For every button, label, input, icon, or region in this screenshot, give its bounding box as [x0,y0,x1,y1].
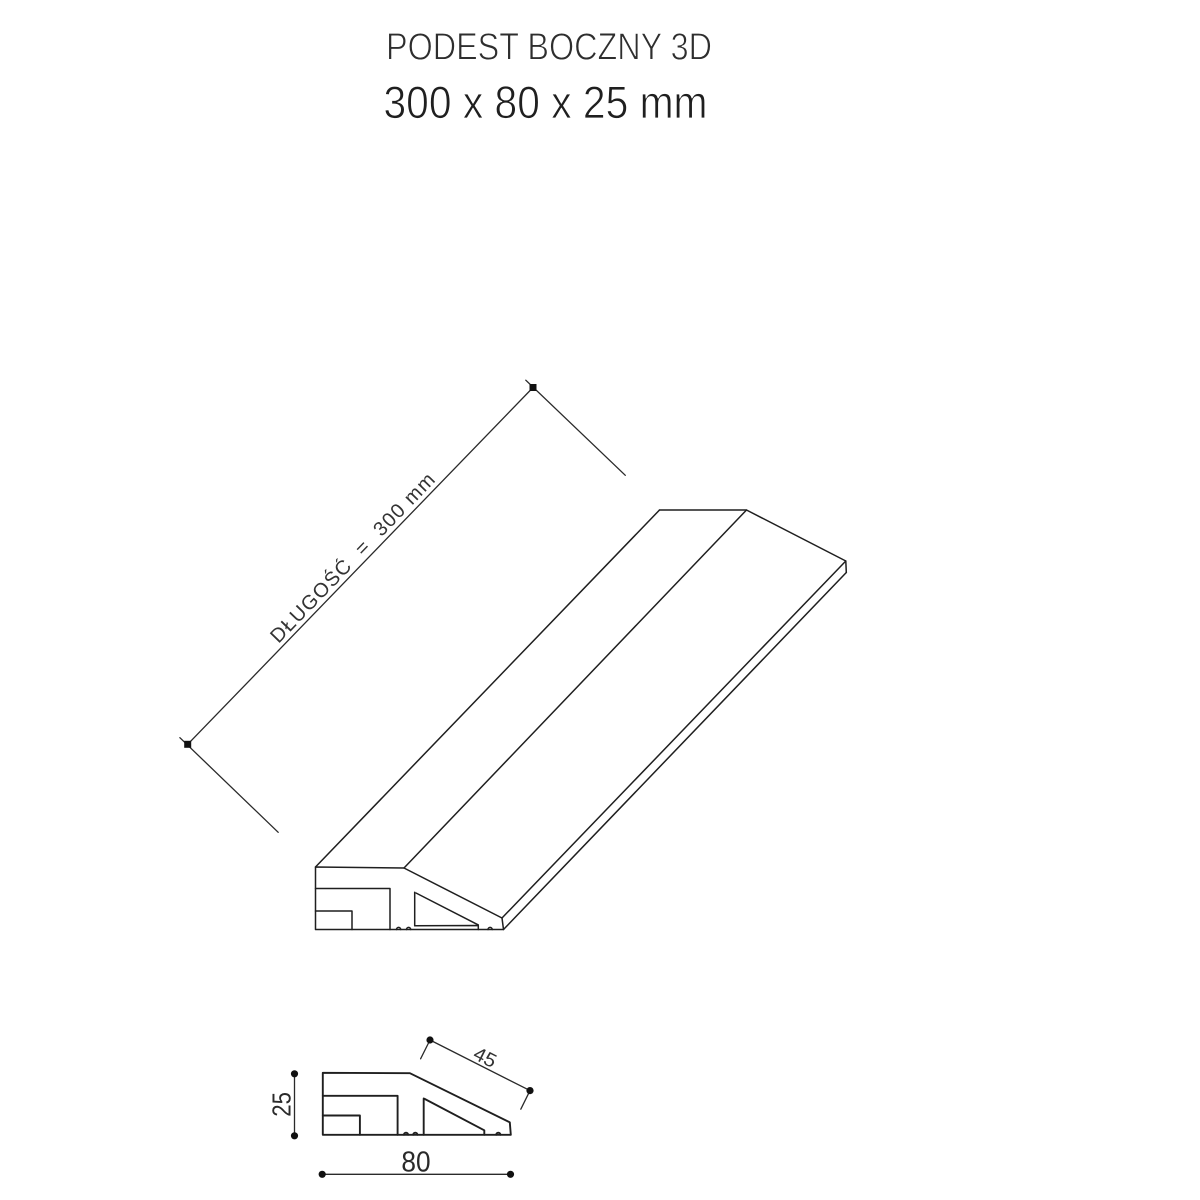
svg-text:25: 25 [267,1092,297,1117]
svg-text:80: 80 [401,1147,430,1179]
svg-text:45: 45 [470,1043,501,1073]
svg-text:DŁUGOŚĆ = 300 mm: DŁUGOŚĆ = 300 mm [265,467,441,648]
svg-text:PODEST BOCZNY 3D: PODEST BOCZNY 3D [386,27,712,69]
svg-text:300 x 80 x 25 mm: 300 x 80 x 25 mm [384,77,708,128]
